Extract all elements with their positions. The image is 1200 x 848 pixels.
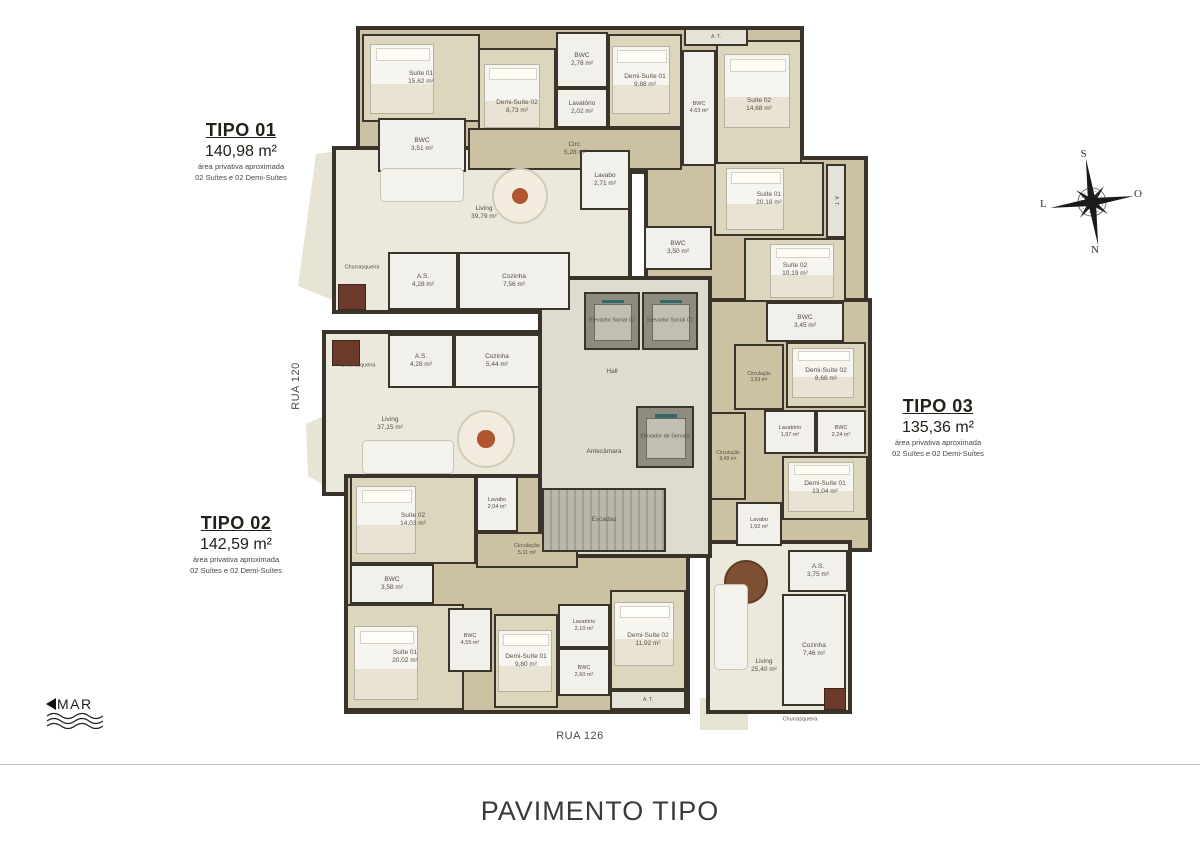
bed-furniture [792, 348, 854, 398]
bed-furniture [614, 602, 674, 666]
room-bwc [766, 302, 844, 342]
room-a-t [610, 690, 686, 710]
room-cozinha [454, 334, 540, 388]
room-elevador-social-02 [584, 292, 640, 350]
room-bwc [558, 648, 610, 696]
room-bwc [350, 564, 434, 604]
tipo-card-tipo-02: TIPO 02142,59 m²área privativa aproximad… [141, 513, 331, 576]
tipo-name: TIPO 03 [843, 396, 1033, 417]
room-a-s [388, 334, 454, 388]
room-lavabo [476, 476, 518, 532]
room-elevador-de-servico [636, 406, 694, 468]
bed-furniture [788, 462, 854, 512]
bed-furniture [612, 46, 670, 114]
bed-furniture [370, 44, 434, 114]
room-lavatorio [558, 604, 610, 648]
elevator-cab [646, 418, 686, 458]
room-lavabo [736, 502, 782, 546]
sea-label: MAR [57, 696, 93, 712]
tipo-name: TIPO 02 [141, 513, 331, 534]
table-furniture [492, 168, 548, 224]
tipo-subtitle: 02 Suítes e 02 Demi-Suítes [146, 173, 336, 183]
room-bwc [448, 608, 492, 672]
room-bwc [556, 32, 608, 88]
compass-west-label: O [1134, 188, 1142, 200]
room-bwc [378, 118, 466, 172]
street-label-rua-120: RUA 120 [290, 346, 302, 426]
bed-furniture [356, 486, 416, 554]
churras-furniture [338, 284, 366, 310]
table-furniture [457, 410, 515, 468]
room-lavabo [580, 150, 630, 210]
bed-furniture [726, 168, 784, 230]
bed-furniture [724, 54, 790, 128]
footer-divider [0, 764, 1200, 765]
room-circulacao [734, 344, 784, 410]
compass-south-label: S [1081, 148, 1087, 160]
street-label-rua-126: RUA 126 [520, 730, 640, 742]
room-cozinha [458, 252, 570, 310]
churras-furniture [824, 688, 846, 710]
room-a-t [684, 28, 748, 46]
tipo-card-tipo-03: TIPO 03135,36 m²área privativa aproximad… [843, 396, 1033, 459]
bed-furniture [498, 630, 552, 692]
bed-furniture [354, 626, 418, 700]
room-label-churrasqueira: Churrasqueira [761, 717, 839, 724]
churras-furniture [332, 340, 360, 366]
room-a-t [826, 164, 846, 238]
floor-plan: Suíte 0115,62 m²BWC3,51 m²Demi-Suíte 028… [0, 0, 1200, 848]
bed-furniture [770, 244, 834, 298]
tipo-area: 142,59 m² [141, 536, 331, 554]
tipo-area: 140,98 m² [146, 143, 336, 161]
compass-rose: S O N L [1040, 148, 1144, 256]
compass-star-icon [1040, 148, 1144, 256]
room-escadas [542, 488, 666, 552]
compass-east-label: L [1040, 198, 1047, 210]
sofa-furniture [380, 168, 464, 202]
left-arrow-icon [46, 698, 56, 710]
room-lavatorio [764, 410, 816, 454]
tipo-area: 135,36 m² [843, 419, 1033, 437]
tipo-subtitle: 02 Suítes e 02 Demi-Suítes [843, 449, 1033, 459]
tipo-subtitle: área privativa aproximada [141, 555, 331, 565]
sea-indicator: MAR [46, 696, 104, 735]
sofa-furniture [714, 584, 748, 670]
room-bwc [644, 226, 712, 270]
compass-north-label: N [1091, 244, 1099, 256]
tipo-subtitle: 02 Suítes e 02 Demi-Suítes [141, 566, 331, 576]
tipo-card-tipo-01: TIPO 01140,98 m²área privativa aproximad… [146, 120, 336, 183]
tipo-subtitle: área privativa aproximada [146, 162, 336, 172]
sofa-furniture [362, 440, 454, 474]
room-elevador-social-01 [642, 292, 698, 350]
elevator-cab [594, 304, 632, 342]
room-a-s [788, 550, 848, 592]
room-a-s [388, 252, 458, 310]
room-bwc [682, 50, 716, 166]
page-title: PAVIMENTO TIPO [0, 796, 1200, 827]
elevator-cab [652, 304, 690, 342]
waves-icon [46, 712, 104, 730]
room-circ [468, 128, 682, 170]
tipo-subtitle: área privativa aproximada [843, 438, 1033, 448]
room-circulacao [710, 412, 746, 500]
room-lavatorio [556, 88, 608, 128]
tipo-name: TIPO 01 [146, 120, 336, 141]
bed-furniture [484, 64, 540, 128]
